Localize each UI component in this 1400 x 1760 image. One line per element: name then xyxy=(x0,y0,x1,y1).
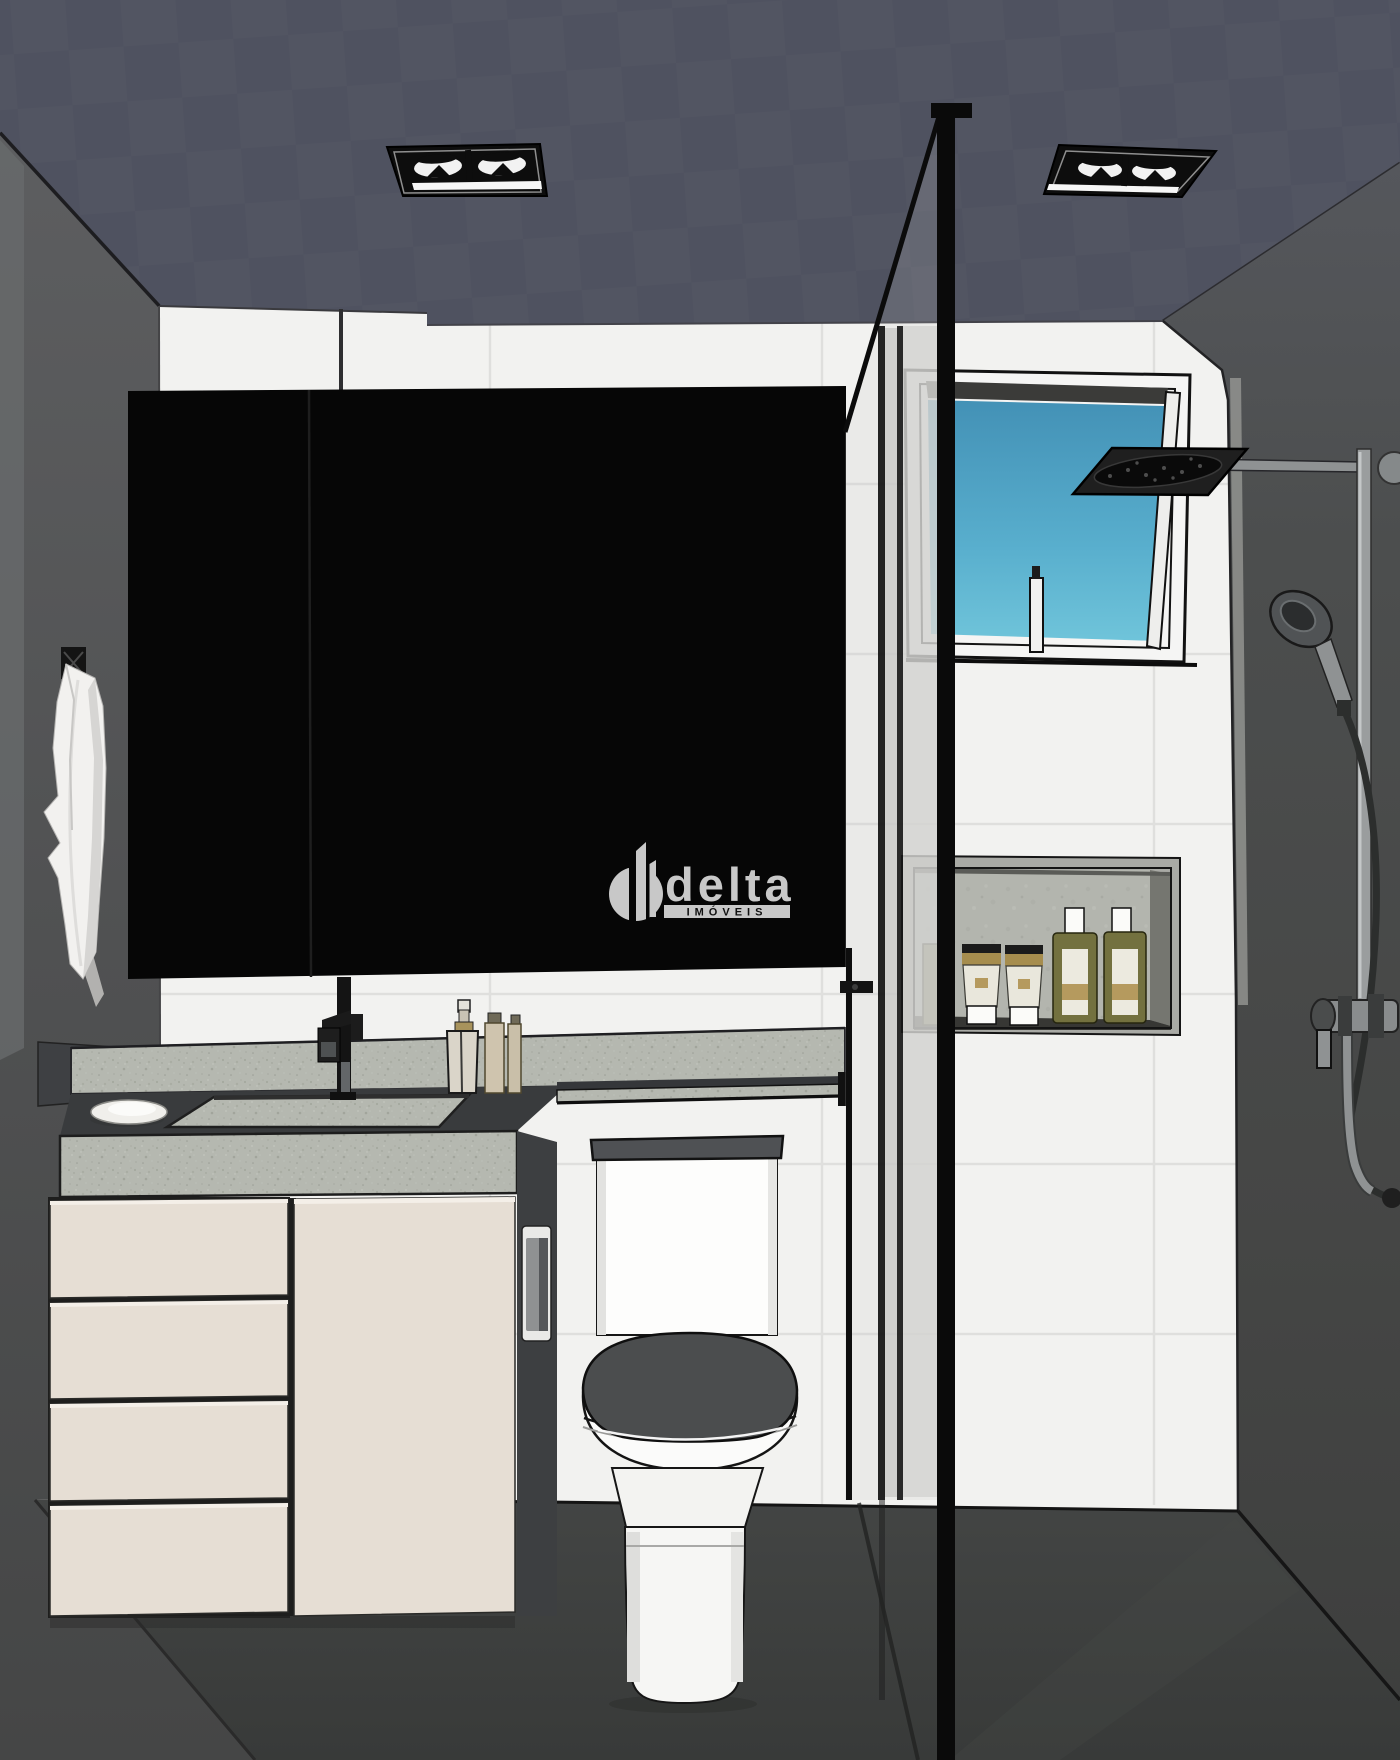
svg-text:delta: delta xyxy=(665,858,795,911)
svg-text:IMÓVEIS: IMÓVEIS xyxy=(687,906,768,919)
